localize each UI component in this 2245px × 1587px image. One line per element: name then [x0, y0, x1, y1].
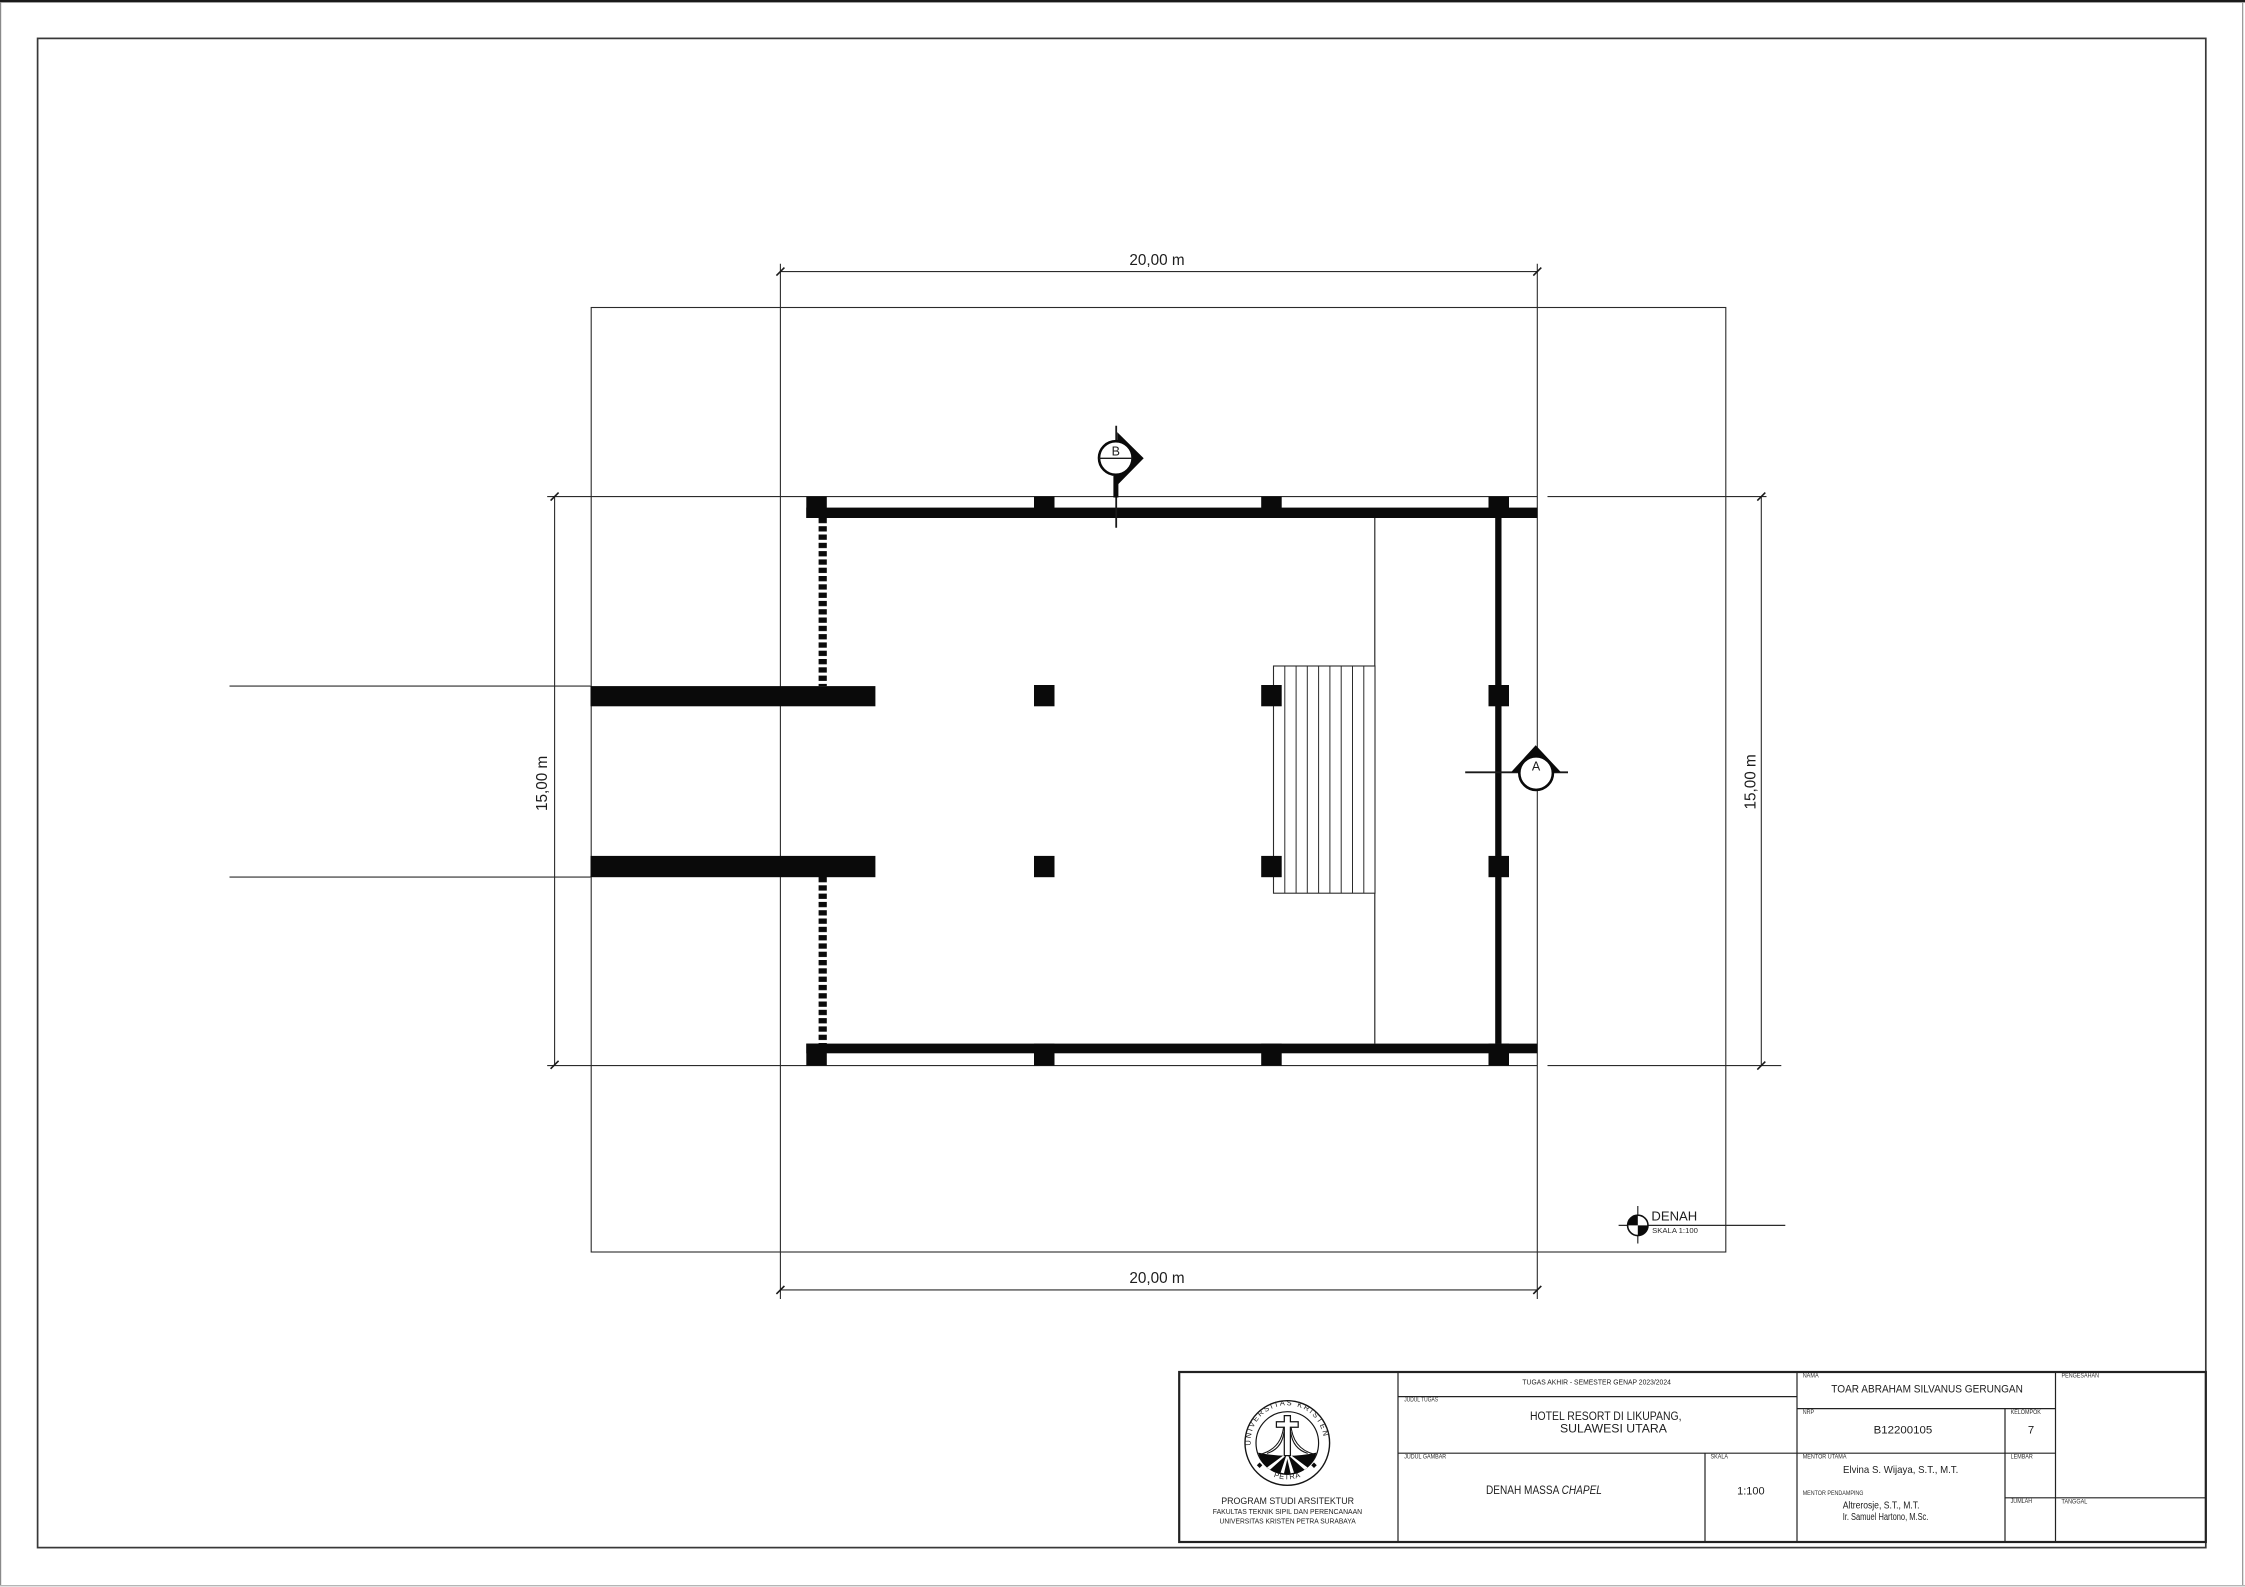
- svg-text:SULAWESI UTARA: SULAWESI UTARA: [1560, 1422, 1668, 1436]
- svg-text:DENAH MASSA CHAPEL: DENAH MASSA CHAPEL: [1486, 1483, 1602, 1497]
- svg-text:MENTOR PENDAMPING: MENTOR PENDAMPING: [1803, 1490, 1864, 1497]
- svg-text:MENTOR UTAMA: MENTOR UTAMA: [1803, 1453, 1847, 1460]
- svg-text:7: 7: [2028, 1425, 2034, 1437]
- svg-text:B: B: [1112, 445, 1120, 459]
- svg-text:PROGRAM STUDI ARSITEKTUR: PROGRAM STUDI ARSITEKTUR: [1221, 1495, 1354, 1506]
- svg-text:NRP: NRP: [1803, 1409, 1814, 1416]
- svg-text:20,00 m: 20,00 m: [1129, 252, 1184, 269]
- svg-text:TOAR ABRAHAM SILVANUS GERUNGAN: TOAR ABRAHAM SILVANUS GERUNGAN: [1831, 1383, 2023, 1395]
- svg-text:1:100: 1:100: [1737, 1485, 1765, 1497]
- svg-text:TANGGAL: TANGGAL: [2062, 1498, 2088, 1505]
- svg-text:TUGAS AKHIR - SEMESTER GENAP 2: TUGAS AKHIR - SEMESTER GENAP 2023/2024: [1522, 1378, 1671, 1387]
- svg-text:DENAH: DENAH: [1651, 1209, 1697, 1224]
- svg-text:FAKULTAS TEKNIK SIPIL DAN PERE: FAKULTAS TEKNIK SIPIL DAN PERENCANAAN: [1213, 1507, 1362, 1516]
- svg-text:UNIVERSITAS KRISTEN PETRA SURA: UNIVERSITAS KRISTEN PETRA SURABAYA: [1220, 1516, 1357, 1525]
- svg-text:LEMBAR: LEMBAR: [2011, 1453, 2034, 1460]
- svg-text:JUMLAH: JUMLAH: [2011, 1498, 2033, 1505]
- svg-text:SKALA: SKALA: [1711, 1453, 1729, 1460]
- svg-text:15,00 m: 15,00 m: [534, 756, 551, 811]
- svg-text:JUDUL GAMBAR: JUDUL GAMBAR: [1404, 1453, 1446, 1460]
- svg-text:20,00 m: 20,00 m: [1129, 1270, 1184, 1287]
- svg-text:A: A: [1532, 760, 1541, 774]
- svg-text:Elvina S. Wijaya, S.T., M.T.: Elvina S. Wijaya, S.T., M.T.: [1843, 1464, 1958, 1476]
- svg-text:Altrerosje, S.T., M.T.: Altrerosje, S.T., M.T.: [1843, 1500, 1920, 1511]
- svg-text:Ir. Samuel Hartono, M.Sc.: Ir. Samuel Hartono, M.Sc.: [1843, 1512, 1929, 1523]
- svg-text:B12200105: B12200105: [1874, 1425, 1933, 1437]
- svg-text:JUDUL TUGAS: JUDUL TUGAS: [1404, 1397, 1438, 1404]
- svg-text:KELOMPOK: KELOMPOK: [2011, 1409, 2042, 1416]
- svg-text:SKALA 1:100: SKALA 1:100: [1652, 1226, 1698, 1235]
- svg-text:15,00 m: 15,00 m: [1743, 754, 1760, 809]
- svg-text:PENGESAHAN: PENGESAHAN: [2062, 1373, 2100, 1380]
- svg-text:NAMA: NAMA: [1803, 1373, 1820, 1380]
